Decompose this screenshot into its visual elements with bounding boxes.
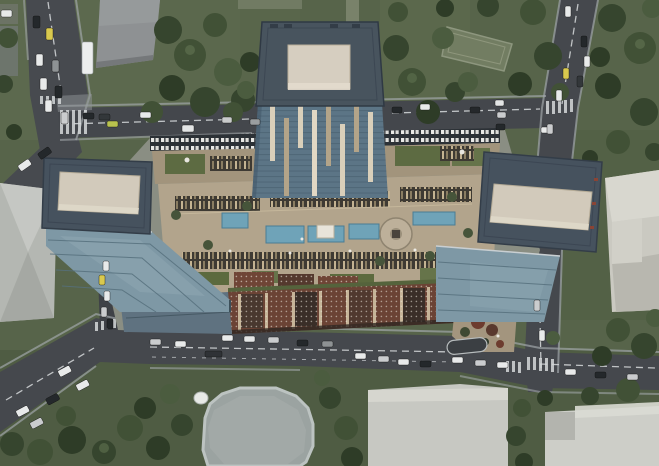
- canopy: [317, 225, 334, 238]
- car: [33, 16, 40, 28]
- tree: [458, 72, 478, 92]
- car: [495, 100, 504, 106]
- crosswalk: [551, 359, 554, 372]
- tree: [240, 52, 260, 72]
- tree: [146, 436, 170, 460]
- roof-vent: [352, 24, 360, 28]
- car: [45, 100, 52, 112]
- context-buildings-shape: [208, 396, 306, 464]
- van: [182, 125, 194, 132]
- tree: [606, 130, 630, 154]
- tree: [592, 346, 612, 366]
- crosswalk: [558, 100, 561, 113]
- pool: [413, 212, 455, 225]
- car: [52, 60, 59, 72]
- car: [99, 114, 110, 120]
- tree: [616, 378, 640, 402]
- car: [378, 356, 389, 362]
- car: [556, 90, 562, 101]
- tree: [0, 432, 24, 456]
- ornamental-tree: [496, 340, 504, 348]
- aerial-masterplan-screenshot: [0, 0, 659, 466]
- car: [581, 36, 587, 47]
- car: [595, 372, 606, 378]
- car: [627, 374, 638, 380]
- courtyard-tree: [203, 240, 213, 250]
- crosswalk: [539, 358, 542, 371]
- car: [496, 124, 505, 130]
- roof-garden: [165, 154, 205, 174]
- tower-central-shape: [288, 83, 350, 90]
- tree: [630, 98, 658, 126]
- roof-row: [400, 187, 472, 202]
- tree: [506, 426, 526, 446]
- balcony-strip: [298, 106, 303, 148]
- car: [322, 341, 333, 347]
- tree: [508, 72, 532, 96]
- tree: [190, 87, 220, 117]
- car: [250, 119, 260, 125]
- tree: [416, 100, 440, 124]
- tree: [134, 397, 156, 419]
- car: [61, 112, 68, 124]
- roof-row: [182, 252, 447, 269]
- car: [470, 107, 480, 113]
- tree: [314, 370, 330, 386]
- tree: [58, 426, 86, 454]
- car: [150, 339, 161, 345]
- pool: [222, 213, 248, 228]
- tree: [319, 387, 341, 409]
- tree: [154, 16, 182, 44]
- car: [83, 113, 94, 119]
- tree: [606, 318, 630, 342]
- roof-vent: [284, 24, 292, 28]
- tree: [388, 2, 408, 22]
- courtyard-shape: [392, 230, 400, 238]
- context-buildings-shape: [368, 388, 508, 402]
- balcony-strip: [326, 106, 331, 166]
- canopy-dot: [460, 150, 465, 155]
- canopy-dot: [497, 335, 500, 338]
- balcony-strip: [270, 106, 275, 161]
- car: [222, 117, 232, 123]
- crosswalk: [546, 101, 549, 114]
- tower-central-rooftop: [288, 45, 350, 89]
- car: [103, 261, 109, 271]
- car: [55, 86, 62, 98]
- roof-vent: [590, 226, 594, 229]
- crosswalk: [545, 358, 548, 371]
- car: [565, 6, 571, 17]
- courtyard-tree: [425, 251, 435, 261]
- car: [452, 357, 463, 363]
- tree: [56, 406, 76, 426]
- ornamental-tree: [486, 324, 498, 336]
- tree: [27, 439, 53, 465]
- context-buildings-shape: [612, 218, 642, 264]
- car: [534, 300, 540, 311]
- balcony-strip: [284, 118, 289, 196]
- roof-vent: [594, 178, 598, 181]
- car: [392, 107, 402, 113]
- crosswalk: [113, 319, 116, 328]
- crosswalk: [40, 96, 43, 104]
- tree: [6, 124, 22, 140]
- context-buildings-shape: [99, 0, 160, 26]
- tree-highlight: [185, 45, 195, 55]
- car: [547, 124, 553, 134]
- crosswalk: [95, 322, 98, 331]
- crosswalk: [552, 101, 555, 114]
- footpath: [346, 0, 359, 22]
- courtyard-tree: [171, 210, 181, 220]
- car: [268, 337, 279, 343]
- courtyard-tree: [463, 228, 473, 238]
- roof-vent: [270, 24, 278, 28]
- car: [420, 361, 431, 367]
- crosswalk: [527, 357, 530, 370]
- roof-row: [440, 146, 474, 161]
- tree: [160, 384, 180, 404]
- taxi: [99, 275, 105, 285]
- canopy-dot: [349, 250, 352, 253]
- tree: [631, 333, 657, 359]
- tree: [520, 0, 546, 25]
- tree: [117, 415, 143, 441]
- tree: [513, 399, 531, 417]
- context-buildings-shape: [545, 412, 575, 440]
- courtyard-tree: [447, 192, 457, 202]
- car: [1, 10, 12, 17]
- ornamental-tree: [460, 327, 470, 337]
- aerial-render-canvas: [0, 0, 659, 466]
- tree: [432, 27, 454, 49]
- tree: [159, 75, 185, 101]
- canopy-dot: [414, 249, 417, 252]
- balcony-strip: [354, 106, 359, 152]
- car: [40, 78, 47, 90]
- tree: [214, 58, 242, 86]
- car: [539, 330, 545, 341]
- car: [297, 340, 308, 346]
- roof-row: [210, 156, 252, 171]
- balcony-strip: [368, 112, 373, 182]
- tree-highlight: [99, 443, 109, 453]
- tree: [534, 42, 562, 70]
- crosswalk: [101, 321, 104, 330]
- tree: [590, 47, 610, 67]
- car: [497, 112, 506, 118]
- car: [107, 121, 118, 127]
- crosswalk: [564, 100, 567, 113]
- canopy-dot: [301, 238, 304, 241]
- car: [565, 369, 576, 375]
- footpath: [238, 0, 302, 9]
- crosswalk: [570, 99, 573, 112]
- context-buildings-shape: [605, 170, 659, 222]
- car: [107, 319, 113, 329]
- courtyard-tree: [375, 256, 385, 266]
- tree: [598, 4, 626, 32]
- tree: [546, 331, 560, 345]
- car: [420, 104, 430, 110]
- car: [36, 54, 43, 66]
- crosswalk: [533, 357, 536, 370]
- car: [398, 359, 409, 365]
- tower-central: [252, 22, 388, 198]
- tree: [383, 35, 409, 61]
- tree: [595, 73, 621, 99]
- crosswalk: [72, 110, 75, 134]
- bus: [205, 351, 222, 357]
- balcony-strip: [312, 110, 317, 196]
- tree: [237, 81, 255, 99]
- crosswalk: [518, 362, 521, 373]
- canopy-dot: [185, 158, 190, 163]
- canopy-dot: [289, 252, 292, 255]
- car: [101, 307, 107, 317]
- tree-highlight: [635, 39, 645, 49]
- taxi: [46, 28, 53, 40]
- crosswalk: [512, 361, 515, 372]
- taxi: [563, 68, 569, 79]
- dome-structure: [194, 392, 208, 404]
- car: [140, 112, 151, 118]
- tree: [537, 390, 553, 406]
- car: [355, 353, 366, 359]
- tree: [334, 416, 358, 440]
- car: [222, 335, 233, 341]
- courtyard-tree: [242, 201, 252, 211]
- crosswalk: [78, 110, 81, 134]
- car: [497, 362, 508, 368]
- car: [104, 291, 110, 301]
- car: [244, 336, 255, 342]
- roof-vent: [592, 202, 596, 205]
- tree: [203, 13, 227, 37]
- car: [175, 341, 186, 347]
- tree-highlight: [407, 73, 417, 83]
- crosswalk: [52, 96, 55, 104]
- tree: [581, 387, 599, 405]
- car: [577, 76, 583, 87]
- canopy-dot: [229, 250, 232, 253]
- balcony-strip: [340, 124, 345, 196]
- roof-vent: [330, 24, 338, 28]
- tree: [171, 414, 193, 436]
- car: [475, 360, 486, 366]
- pool: [349, 224, 379, 239]
- car: [584, 56, 590, 67]
- bus: [82, 42, 93, 74]
- pool: [266, 226, 304, 243]
